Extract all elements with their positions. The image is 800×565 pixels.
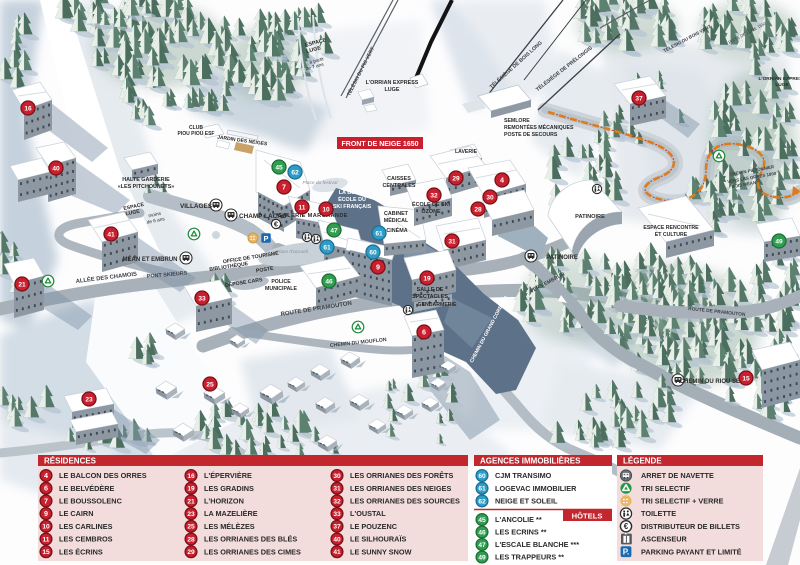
svg-text:49: 49 (478, 554, 486, 561)
svg-text:CJM TRANSIMO: CJM TRANSIMO (495, 471, 552, 480)
svg-text:29: 29 (452, 175, 460, 182)
svg-text:60: 60 (478, 473, 486, 480)
svg-text:23: 23 (187, 511, 195, 518)
svg-text:62: 62 (291, 169, 299, 176)
svg-text:31: 31 (448, 238, 456, 245)
svg-text:LE CAIRN: LE CAIRN (59, 509, 93, 518)
svg-text:LES MÉLÈZES: LES MÉLÈZES (204, 522, 255, 531)
svg-text:37: 37 (333, 524, 341, 531)
svg-text:25: 25 (206, 381, 214, 388)
svg-text:19: 19 (187, 486, 195, 493)
svg-text:LE BALCON DES ORRES: LE BALCON DES ORRES (59, 471, 147, 480)
svg-text:NEIGE ET SOLEIL: NEIGE ET SOLEIL (495, 497, 558, 506)
svg-text:LES ORRIANES DES NEIGES: LES ORRIANES DES NEIGES (350, 484, 451, 493)
svg-text:7: 7 (282, 182, 286, 191)
svg-text:30: 30 (486, 194, 494, 201)
svg-text:CENTRALES: CENTRALES (383, 183, 416, 189)
svg-text:28: 28 (187, 536, 195, 543)
svg-text:L'ÉPERVIÈRE: L'ÉPERVIÈRE (204, 471, 252, 480)
svg-text:L'ANCOLIE **: L'ANCOLIE ** (495, 515, 542, 524)
svg-text:Place du festival: Place du festival (303, 180, 339, 186)
svg-text:LE SILHOURAÏS: LE SILHOURAÏS (350, 535, 406, 544)
svg-text:TRI SELECTIF: TRI SELECTIF (641, 484, 691, 493)
svg-text:15: 15 (742, 375, 750, 382)
svg-text:LUGE: LUGE (775, 82, 789, 88)
svg-text:23: 23 (85, 396, 93, 403)
svg-text:15: 15 (42, 549, 50, 556)
svg-text:ARRET DE NAVETTE: ARRET DE NAVETTE (641, 471, 714, 480)
svg-text:TOILETTE: TOILETTE (641, 509, 676, 518)
svg-text:6: 6 (422, 327, 426, 336)
svg-text:30: 30 (333, 473, 341, 480)
svg-text:LES ÉCRINS: LES ÉCRINS (59, 547, 103, 556)
svg-text:LE POUZENC: LE POUZENC (350, 522, 398, 531)
svg-text:46: 46 (478, 529, 486, 536)
svg-text:61: 61 (478, 486, 486, 493)
svg-text:MÉDICAL: MÉDICAL (384, 216, 409, 224)
svg-text:SALLE DE: SALLE DE (417, 287, 444, 293)
svg-text:POSTE DE SECOURS: POSTE DE SECOURS (504, 132, 558, 138)
svg-text:45: 45 (275, 164, 283, 171)
svg-text:47: 47 (330, 227, 338, 234)
svg-text:CABINET: CABINET (384, 211, 409, 217)
svg-text:Émile Hodoul: Émile Hodoul (394, 245, 422, 251)
svg-text:40: 40 (52, 165, 60, 172)
svg-text:MUNICIPALE: MUNICIPALE (265, 286, 297, 292)
svg-text:PIOU PIOU ESF: PIOU PIOU ESF (178, 131, 215, 137)
svg-text:GALERIE MARCHANDE: GALERIE MARCHANDE (278, 213, 348, 219)
svg-text:41: 41 (107, 231, 115, 238)
svg-text:PATINOIRE: PATINOIRE (575, 214, 605, 220)
svg-text:REMONTÉES MÉCANIQUES: REMONTÉES MÉCANIQUES (504, 123, 574, 131)
svg-text:PARKING PAYANT ET LIMITÉ: PARKING PAYANT ET LIMITÉ (641, 547, 742, 556)
svg-text:Place d'accueil: Place d'accueil (276, 249, 309, 255)
svg-text:LE SUNNY SNOW: LE SUNNY SNOW (350, 547, 412, 556)
svg-text:16: 16 (187, 473, 195, 480)
svg-text:45: 45 (478, 517, 486, 524)
svg-text:25: 25 (187, 524, 195, 531)
svg-text:HÔTELS: HÔTELS (572, 512, 603, 521)
svg-text:ESPACE RENCONTRE: ESPACE RENCONTRE (643, 225, 699, 231)
svg-text:LES ORRIANES DES CIMES: LES ORRIANES DES CIMES (204, 547, 301, 556)
svg-text:HALTE GARDERIE: HALTE GARDERIE (122, 177, 170, 183)
svg-text:4: 4 (44, 471, 48, 480)
svg-text:LÉGENDE: LÉGENDE (623, 457, 662, 466)
svg-text:11: 11 (43, 536, 50, 543)
svg-text:AGENCES IMMOBILIÈRES: AGENCES IMMOBILIÈRES (480, 457, 581, 466)
svg-text:49: 49 (775, 238, 783, 245)
svg-text:ASCENSEUR: ASCENSEUR (641, 535, 688, 544)
svg-text:LA BULLE: LA BULLE (339, 190, 366, 196)
svg-text:LES TRAPPEURS **: LES TRAPPEURS ** (495, 553, 564, 562)
svg-text:37: 37 (635, 95, 643, 102)
svg-text:LE BELVÉDÈRE: LE BELVÉDÈRE (59, 484, 115, 493)
svg-text:4: 4 (500, 175, 504, 184)
svg-text:VILLAGES: VILLAGES (180, 203, 213, 210)
svg-text:LES ORRIANES DES SOURCES: LES ORRIANES DES SOURCES (350, 497, 460, 506)
svg-text:GENDARMERIE: GENDARMERIE (418, 302, 457, 308)
svg-text:LUGE: LUGE (385, 87, 400, 93)
svg-text:CINÉMA: CINÉMA (386, 226, 407, 234)
svg-text:32: 32 (333, 498, 341, 505)
svg-text:LES CEMBROS: LES CEMBROS (59, 535, 113, 544)
svg-text:9: 9 (44, 509, 48, 518)
svg-text:«LES PITCHOUNETS»: «LES PITCHOUNETS» (118, 184, 175, 190)
svg-text:LES ORRIANES DES FORÊTS: LES ORRIANES DES FORÊTS (350, 471, 454, 480)
svg-text:46: 46 (325, 278, 333, 285)
svg-text:LE BOUSSOLENC: LE BOUSSOLENC (59, 497, 123, 506)
svg-text:RÉSIDENCES: RÉSIDENCES (44, 457, 97, 466)
svg-text:DISTRIBUTEUR DE BILLETS: DISTRIBUTEUR DE BILLETS (641, 522, 740, 531)
svg-text:CAISSES: CAISSES (387, 176, 411, 182)
svg-text:32: 32 (430, 192, 438, 199)
svg-text:ET CULTURE: ET CULTURE (655, 232, 688, 238)
svg-text:L'HORIZON: L'HORIZON (204, 497, 244, 506)
svg-text:61: 61 (323, 244, 331, 251)
svg-text:L'ORRIAN EXPRESS: L'ORRIAN EXPRESS (366, 80, 419, 86)
svg-text:61: 61 (375, 230, 383, 237)
svg-text:€: € (624, 522, 629, 531)
svg-text:21: 21 (187, 498, 195, 505)
svg-text:SEMLORE: SEMLORE (504, 118, 530, 124)
svg-text:TRI SELECTIF + VERRE: TRI SELECTIF + VERRE (641, 497, 724, 506)
svg-text:10: 10 (42, 524, 50, 531)
svg-text:SPECTACLES: SPECTACLES (412, 294, 448, 300)
svg-text:MÉAN ET EMBRUN: MÉAN ET EMBRUN (123, 255, 178, 263)
svg-text:LES GRADINS: LES GRADINS (204, 484, 254, 493)
svg-text:47: 47 (478, 542, 486, 549)
svg-text:6: 6 (44, 484, 48, 493)
svg-text:7: 7 (44, 496, 48, 505)
svg-text:L'OUSTAL: L'OUSTAL (350, 509, 386, 518)
svg-text:19: 19 (423, 275, 431, 282)
svg-text:L'ESCALE BLANCHE ***: L'ESCALE BLANCHE *** (495, 540, 579, 549)
svg-text:16: 16 (24, 105, 32, 112)
svg-text:CHEMIN DU RIOU SEC: CHEMIN DU RIOU SEC (680, 379, 745, 385)
svg-text:L'ORRIAN EXPRESS: L'ORRIAN EXPRESS (759, 76, 800, 82)
svg-text:40: 40 (333, 536, 341, 543)
svg-text:OZONE: OZONE (421, 209, 441, 215)
svg-text:POLICE: POLICE (271, 279, 291, 285)
svg-text:62: 62 (478, 498, 486, 505)
svg-text:P.: P. (623, 548, 630, 557)
svg-text:28: 28 (474, 206, 482, 213)
svg-text:FRONT DE NEIGE 1650: FRONT DE NEIGE 1650 (341, 141, 418, 148)
svg-text:LES ORRIANES DES BLÉS: LES ORRIANES DES BLÉS (204, 535, 297, 544)
svg-text:LA MAZELIÈRE: LA MAZELIÈRE (204, 509, 258, 518)
svg-text:LOGEVAC IMMOBILIER: LOGEVAC IMMOBILIER (495, 484, 577, 493)
svg-text:LES CARLINES: LES CARLINES (59, 522, 113, 531)
svg-text:9: 9 (376, 262, 380, 271)
svg-text:11: 11 (299, 204, 306, 211)
svg-text:LES ECRINS **: LES ECRINS ** (495, 528, 547, 537)
svg-text:33: 33 (333, 511, 341, 518)
svg-text:LAVERIE: LAVERIE (455, 149, 478, 155)
svg-text:29: 29 (187, 549, 195, 556)
svg-text:41: 41 (333, 549, 341, 556)
svg-text:10: 10 (322, 206, 330, 213)
svg-text:60: 60 (369, 249, 377, 256)
svg-text:PATINOIRE: PATINOIRE (546, 255, 578, 261)
svg-text:ÉCOLE DU: ÉCOLE DU (338, 195, 366, 203)
svg-text:33: 33 (198, 295, 206, 302)
svg-text:21: 21 (18, 281, 26, 288)
svg-text:31: 31 (333, 486, 341, 493)
svg-text:SKI FRANÇAIS: SKI FRANÇAIS (333, 204, 372, 210)
svg-text:P: P (264, 234, 269, 243)
